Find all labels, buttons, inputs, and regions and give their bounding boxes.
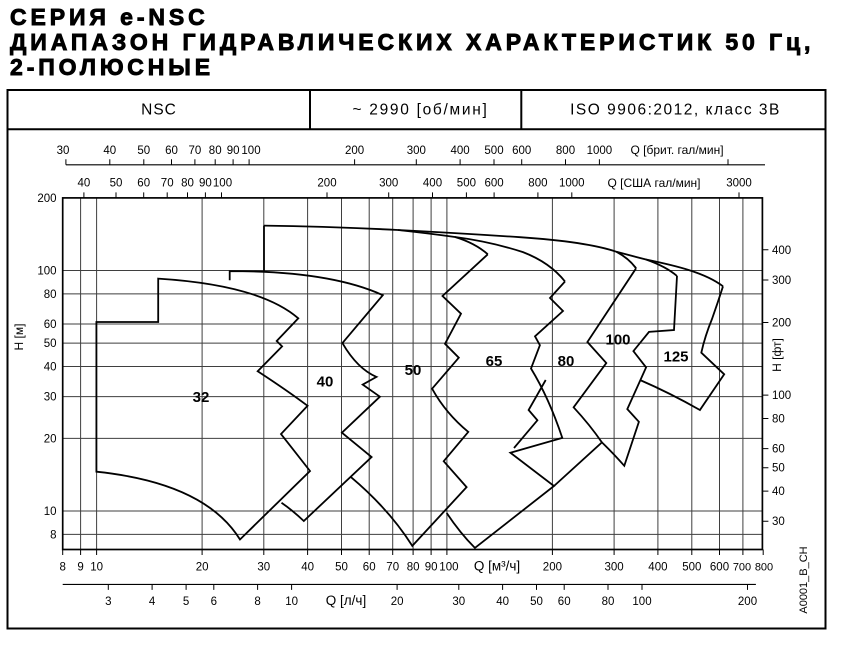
svg-text:500: 500 [682, 562, 701, 574]
svg-text:200: 200 [37, 193, 56, 205]
svg-text:3000: 3000 [726, 178, 752, 190]
svg-text:5: 5 [183, 596, 189, 608]
svg-text:40: 40 [496, 596, 509, 608]
svg-text:50: 50 [137, 145, 150, 157]
svg-text:80: 80 [44, 289, 57, 301]
svg-text:90: 90 [199, 178, 212, 190]
svg-text:30: 30 [44, 392, 57, 404]
svg-text:30: 30 [772, 516, 785, 528]
svg-text:300: 300 [379, 178, 398, 190]
svg-text:50: 50 [405, 362, 422, 379]
svg-text:20: 20 [196, 562, 209, 574]
svg-text:10: 10 [285, 596, 298, 608]
svg-text:200: 200 [738, 596, 757, 608]
svg-text:200: 200 [543, 562, 562, 574]
svg-text:1000: 1000 [559, 178, 585, 190]
svg-text:Q [л/ч]: Q [л/ч] [326, 593, 366, 608]
svg-text:40: 40 [317, 374, 334, 391]
svg-text:70: 70 [161, 178, 174, 190]
svg-text:400: 400 [451, 145, 470, 157]
svg-text:10: 10 [44, 506, 57, 518]
svg-text:50: 50 [335, 562, 348, 574]
svg-text:90: 90 [425, 562, 438, 574]
svg-text:200: 200 [317, 178, 336, 190]
svg-text:60: 60 [44, 319, 57, 331]
svg-text:8: 8 [59, 562, 65, 574]
svg-text:600: 600 [710, 562, 729, 574]
svg-text:10: 10 [90, 562, 103, 574]
svg-text:Q [брит. гал/мин]: Q [брит. гал/мин] [630, 143, 723, 157]
svg-text:80: 80 [407, 562, 420, 574]
svg-text:9: 9 [77, 562, 83, 574]
svg-text:40: 40 [301, 562, 314, 574]
svg-text:8: 8 [254, 596, 260, 608]
svg-text:~ 2990 [об/мин]: ~ 2990 [об/мин] [353, 102, 489, 119]
svg-text:60: 60 [363, 562, 376, 574]
svg-text:70: 70 [189, 145, 202, 157]
svg-text:100: 100 [37, 266, 56, 278]
svg-text:500: 500 [484, 145, 503, 157]
svg-text:600: 600 [485, 178, 504, 190]
svg-text:50: 50 [772, 463, 785, 475]
svg-text:125: 125 [663, 349, 688, 366]
svg-text:3: 3 [105, 596, 111, 608]
svg-text:80: 80 [181, 178, 194, 190]
svg-text:50: 50 [44, 338, 57, 350]
svg-text:90: 90 [227, 145, 240, 157]
svg-text:80: 80 [209, 145, 222, 157]
svg-text:700: 700 [733, 562, 751, 574]
svg-text:40: 40 [772, 486, 785, 498]
svg-text:400: 400 [772, 245, 791, 257]
svg-text:30: 30 [452, 596, 465, 608]
svg-text:40: 40 [103, 145, 116, 157]
svg-text:500: 500 [457, 178, 476, 190]
svg-text:70: 70 [386, 562, 399, 574]
svg-text:8: 8 [50, 529, 56, 541]
svg-text:65: 65 [486, 353, 503, 370]
svg-text:400: 400 [648, 562, 667, 574]
svg-text:6: 6 [211, 596, 217, 608]
svg-text:32: 32 [193, 389, 210, 406]
svg-text:30: 30 [57, 145, 70, 157]
svg-text:100: 100 [241, 145, 260, 157]
svg-text:20: 20 [44, 433, 57, 445]
svg-text:80: 80 [772, 414, 785, 426]
svg-text:300: 300 [605, 562, 624, 574]
svg-text:A0001_B_CH: A0001_B_CH [798, 546, 810, 613]
svg-text:H [м]: H [м] [12, 324, 26, 351]
svg-text:60: 60 [165, 145, 178, 157]
svg-text:800: 800 [528, 178, 547, 190]
svg-text:40: 40 [44, 362, 57, 374]
svg-text:400: 400 [423, 178, 442, 190]
svg-text:50: 50 [110, 178, 123, 190]
svg-text:60: 60 [137, 178, 150, 190]
svg-text:200: 200 [772, 318, 791, 330]
svg-text:100: 100 [439, 562, 458, 574]
svg-text:Q [США гал/мин]: Q [США гал/мин] [607, 176, 700, 190]
svg-text:30: 30 [257, 562, 270, 574]
svg-text:20: 20 [391, 596, 404, 608]
svg-text:100: 100 [213, 178, 232, 190]
svg-text:40: 40 [78, 178, 91, 190]
svg-text:60: 60 [772, 444, 785, 456]
svg-text:800: 800 [755, 562, 773, 574]
svg-text:100: 100 [632, 596, 651, 608]
svg-text:300: 300 [407, 145, 426, 157]
svg-text:4: 4 [149, 596, 156, 608]
svg-text:80: 80 [602, 596, 615, 608]
svg-text:80: 80 [558, 353, 575, 370]
svg-text:Q [м³/ч]: Q [м³/ч] [474, 559, 520, 574]
svg-text:1000: 1000 [587, 145, 613, 157]
svg-text:H [фт]: H [фт] [770, 338, 784, 372]
svg-text:300: 300 [772, 275, 791, 287]
svg-text:100: 100 [605, 332, 630, 349]
svg-text:600: 600 [512, 145, 531, 157]
svg-text:50: 50 [530, 596, 543, 608]
svg-text:NSC: NSC [141, 102, 177, 119]
svg-text:ISO 9906:2012, класс 3В: ISO 9906:2012, класс 3В [570, 102, 781, 119]
svg-text:100: 100 [772, 390, 791, 402]
svg-text:60: 60 [558, 596, 571, 608]
svg-text:800: 800 [556, 145, 575, 157]
svg-text:200: 200 [345, 145, 364, 157]
